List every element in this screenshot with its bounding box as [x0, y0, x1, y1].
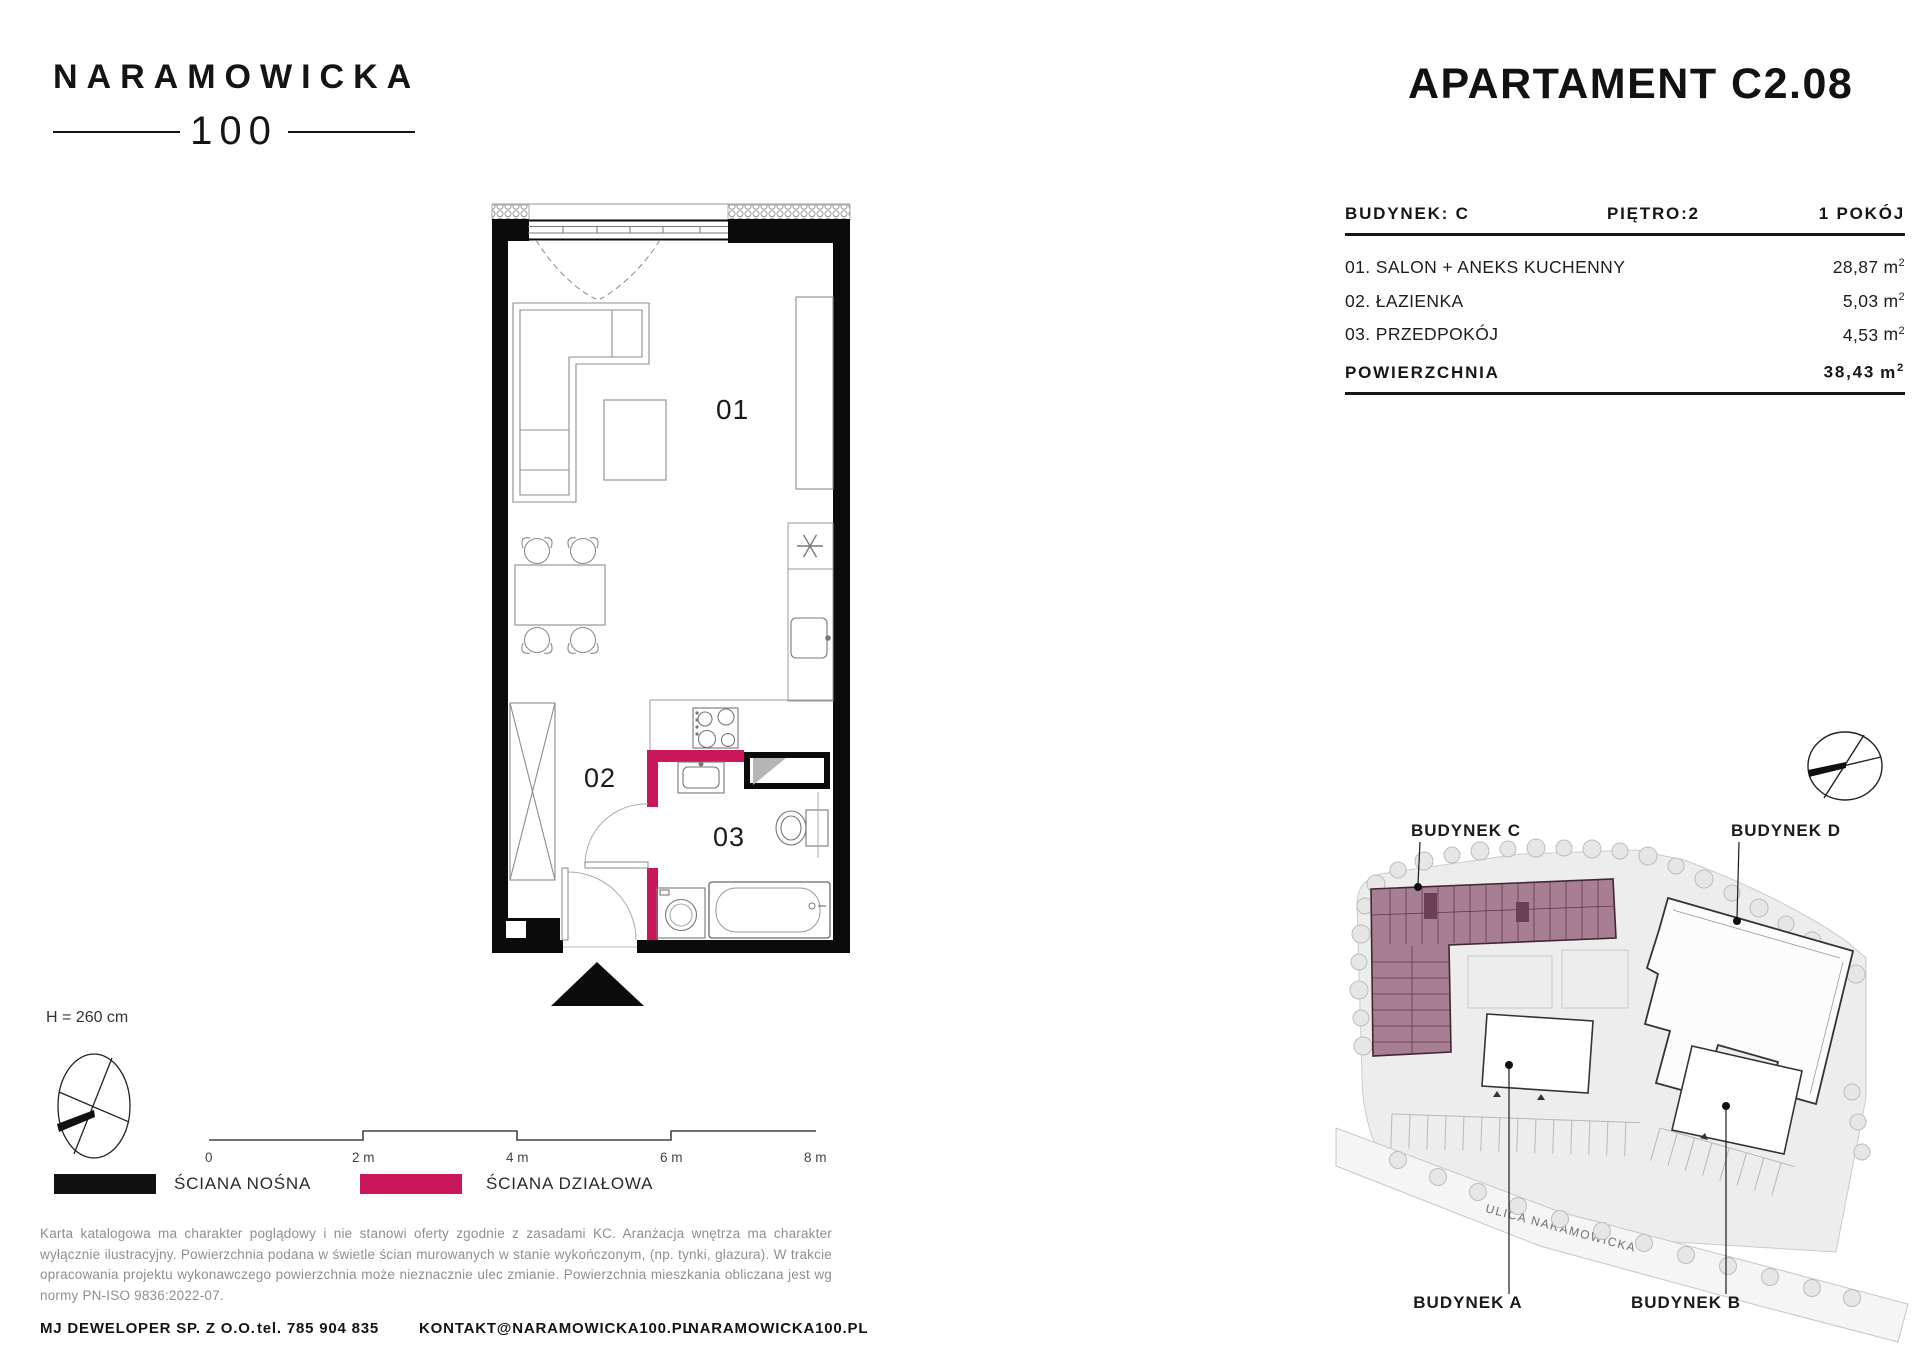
page-title: APARTAMENT C2.08 [1408, 60, 1853, 109]
room-label-02: 02 [584, 763, 616, 793]
scale-tick: 2 m [352, 1150, 375, 1165]
tall-cabinet [796, 297, 833, 489]
room-area: 5,03m2 [1843, 282, 1905, 316]
entrance-door [562, 868, 637, 947]
scale-tick: 8 m [804, 1150, 827, 1165]
legend-swatch-partition [360, 1174, 462, 1194]
scale-tick: 6 m [660, 1150, 683, 1165]
balcony-hatch [728, 205, 850, 220]
floor-label: PIĘTRO:2 [1607, 204, 1700, 224]
wall-notch [506, 921, 526, 938]
room-rows: 01. SALON + ANEKS KUCHENNY 28,87m2 02. Ł… [1345, 248, 1905, 349]
building-d-label: BUDYNEK D [1731, 821, 1841, 840]
vent-star-icon [797, 535, 823, 557]
building-label: BUDYNEK: C [1345, 204, 1470, 224]
shaft-niche [747, 755, 827, 786]
kitchen-sink [791, 618, 827, 658]
building-c-label: BUDYNEK C [1411, 821, 1521, 840]
toilet [776, 810, 828, 846]
wardrobe [510, 703, 555, 880]
room-area: 4,53m2 [1843, 316, 1905, 350]
balcony-hatch [492, 205, 529, 220]
building-a [1482, 1014, 1593, 1093]
ceiling-height-note: H = 260 cm [46, 1009, 128, 1026]
room-name: 01. SALON + ANEKS KUCHENNY [1345, 252, 1625, 282]
dining-set [515, 538, 605, 654]
logo-rule-right [288, 131, 415, 133]
building-a-label: BUDYNEK A [1413, 1293, 1522, 1312]
legend-swatch-load-bearing [54, 1174, 156, 1194]
coffee-table [604, 400, 666, 480]
kitchen [650, 297, 833, 750]
logo-name: NARAMOWICKA [53, 58, 415, 97]
unit-info-table: BUDYNEK: C PIĘTRO:2 1 POKÓJ 01. SALON + … [1345, 204, 1905, 395]
kitchen-counter [788, 523, 833, 701]
balcony-window [528, 221, 728, 300]
room-name: 02. ŁAZIENKA [1345, 286, 1464, 316]
total-area-value: 38,43m2 [1824, 362, 1905, 383]
footer-email: KONTAKT@NARAMOWICKA100.PL [419, 1320, 693, 1337]
logo-rule-left [53, 131, 180, 133]
bathroom-door [585, 804, 648, 868]
building-b-label: BUDYNEK B [1631, 1293, 1741, 1312]
total-area-label: POWIERZCHNIA [1345, 363, 1500, 383]
logo: NARAMOWICKA 100 [53, 58, 415, 154]
table-row: 01. SALON + ANEKS KUCHENNY 28,87m2 [1345, 248, 1905, 282]
table-row: 02. ŁAZIENKA 5,03m2 [1345, 282, 1905, 316]
total-area-row: POWIERZCHNIA 38,43m2 [1345, 362, 1905, 395]
disclaimer-text: Karta katalogowa ma charakter poglądowy … [40, 1224, 832, 1306]
scale-tick: 4 m [506, 1150, 529, 1165]
washbasin [678, 762, 724, 794]
room-label-03: 03 [713, 822, 745, 852]
faucet-icon [825, 635, 831, 641]
scale-bar: 0 2 m 4 m 6 m 8 m [205, 1131, 827, 1165]
logo-number: 100 [190, 109, 278, 154]
room-area: 28,87m2 [1833, 248, 1905, 282]
legend-label-partition: ŚCIANA DZIAŁOWA [486, 1174, 653, 1194]
bathtub [709, 882, 830, 938]
entrance-arrow-icon [551, 962, 644, 1006]
room-name: 03. PRZEDPOKÓJ [1345, 319, 1498, 349]
footer-phone: tel. 785 904 835 [257, 1320, 379, 1337]
site-plan: ULICA NARAMOWICKA [1335, 712, 1920, 1360]
rooms-count-label: 1 POKÓJ [1819, 204, 1905, 224]
footer-website: NARAMOWICKA100.PL [688, 1320, 868, 1337]
stove [693, 708, 738, 748]
unit-table-header: BUDYNEK: C PIĘTRO:2 1 POKÓJ [1345, 204, 1905, 236]
sofa [513, 303, 649, 502]
legend-label-load-bearing: ŚCIANA NOŚNA [174, 1174, 311, 1194]
washing-machine [657, 888, 705, 938]
table-row: 03. PRZEDPOKÓJ 4,53m2 [1345, 316, 1905, 350]
compass-icon [57, 1054, 130, 1158]
scale-tick: 0 [205, 1150, 213, 1165]
footer-company: MJ DEWELOPER SP. Z O.O. [40, 1320, 256, 1337]
north-compass-icon [1808, 732, 1882, 800]
floor-plan: 01 02 03 H = 260 cm 0 2 m 4 m 6 m 8 m [30, 180, 870, 1170]
room-label-01: 01 [716, 394, 749, 425]
